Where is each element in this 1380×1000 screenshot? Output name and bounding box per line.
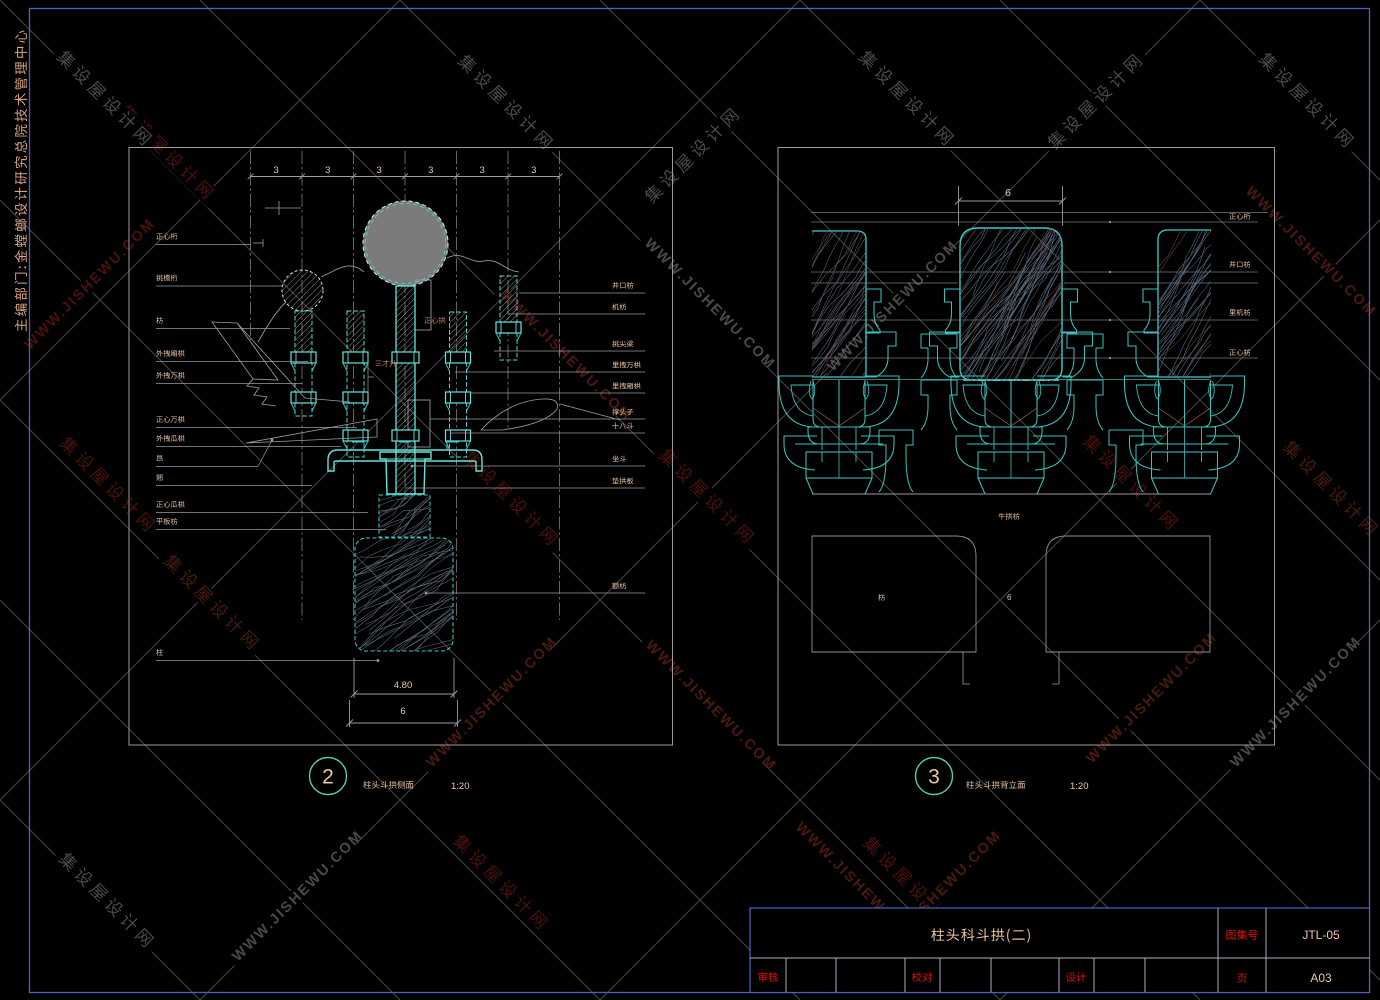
svg-text:3: 3 bbox=[428, 165, 433, 176]
svg-text:3: 3 bbox=[480, 165, 485, 176]
svg-text:A03: A03 bbox=[1310, 971, 1332, 985]
svg-text:3: 3 bbox=[325, 165, 330, 176]
svg-text:2: 2 bbox=[322, 766, 334, 789]
svg-text:3: 3 bbox=[531, 165, 536, 176]
svg-text:3: 3 bbox=[928, 766, 940, 789]
svg-text:6: 6 bbox=[1007, 593, 1012, 602]
svg-text:6: 6 bbox=[400, 706, 405, 717]
svg-text:3: 3 bbox=[377, 165, 382, 176]
svg-text:3: 3 bbox=[274, 165, 279, 176]
svg-text:1:20: 1:20 bbox=[451, 781, 470, 792]
svg-text:6: 6 bbox=[1005, 187, 1011, 199]
svg-text:4.80: 4.80 bbox=[394, 680, 413, 691]
svg-text:1:20: 1:20 bbox=[1070, 781, 1089, 792]
svg-text:JTL-05: JTL-05 bbox=[1302, 928, 1340, 942]
